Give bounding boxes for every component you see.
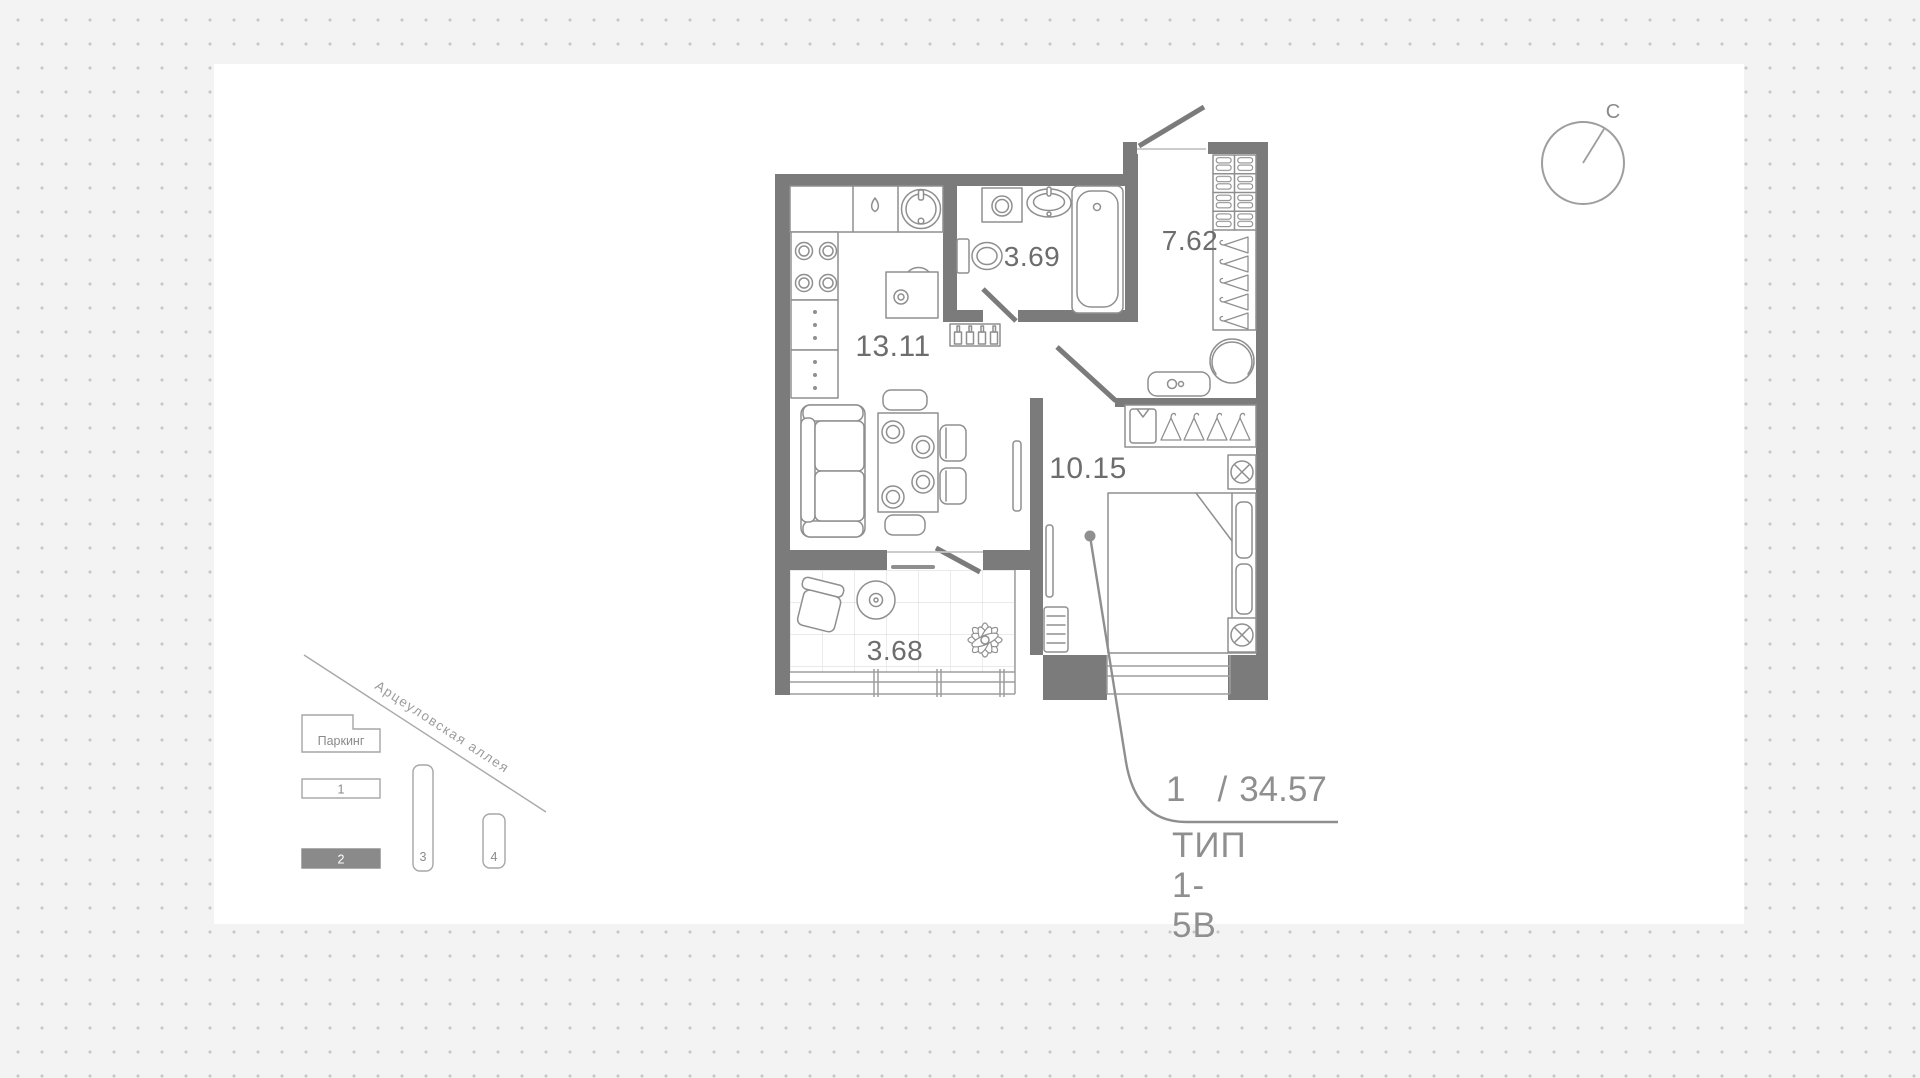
bathtub-icon — [1072, 186, 1123, 313]
bathroom-sink-icon — [1027, 187, 1071, 217]
room-area-hallway: 7.62 — [1162, 225, 1219, 256]
site-plan: Арцеуловская аллея Паркинг 1 2 3 4 — [295, 645, 560, 885]
building-4[interactable]: 4 — [483, 814, 505, 868]
building-1[interactable]: 1 — [302, 779, 380, 798]
apartment-type: ТИП 1-5В — [1172, 826, 1247, 946]
building-2-selected[interactable]: 2 — [302, 849, 380, 868]
compass: С — [1520, 85, 1650, 215]
stove-icon — [791, 232, 838, 300]
desk-icon — [886, 268, 938, 319]
washing-machine-icon — [982, 188, 1022, 222]
sofa-icon — [801, 405, 865, 537]
apartment-summary: 1/34.57 — [1166, 770, 1327, 810]
room-area-kitchen-living: 13.11 — [855, 330, 930, 363]
vent-shaft-icon — [1228, 455, 1256, 489]
parking-building[interactable]: Паркинг — [302, 715, 380, 752]
balcony-table-icon — [857, 581, 895, 619]
divider-slash: / — [1217, 770, 1227, 809]
bar-shelf-icon — [950, 324, 1000, 346]
room-area-bedroom: 10.15 — [1049, 452, 1127, 485]
building-3[interactable]: 3 — [413, 765, 433, 871]
entrance-door-swing — [1139, 107, 1204, 146]
radiator-icon — [1044, 607, 1068, 652]
bedroom-window — [1107, 655, 1230, 694]
parking-label: Паркинг — [318, 734, 365, 748]
living-tv-icon — [1013, 441, 1021, 511]
room-area-bathroom: 3.69 — [1004, 241, 1061, 272]
hallway-hangers-icon — [1220, 237, 1248, 329]
console-table-icon — [1148, 372, 1210, 396]
street-name: Арцеуловская аллея — [372, 678, 512, 776]
plant-icon — [968, 623, 1002, 657]
dining-set-icon — [878, 390, 966, 535]
canvas: 13.11 3.69 7.62 10.15 3.68 Арцеуловская … — [0, 0, 1920, 1078]
kitchen-sink-icon — [902, 190, 941, 229]
building-3-label: 3 — [420, 850, 427, 864]
building-2-label: 2 — [338, 853, 345, 867]
bedroom-rail-icon — [1125, 405, 1256, 447]
vent-shaft-icon — [1228, 618, 1256, 652]
room-area-balcony: 3.68 — [867, 635, 924, 666]
building-1-label: 1 — [338, 783, 345, 797]
rooms-count: 1 — [1166, 770, 1185, 809]
hallway-chair-icon — [1210, 339, 1254, 383]
floor-plan: 13.11 3.69 7.62 10.15 3.68 — [760, 95, 1420, 885]
bedroom-tv-icon — [1046, 525, 1053, 597]
bedroom-door-swing — [1057, 347, 1116, 401]
kitchen-cabinets-icon — [791, 300, 838, 398]
toilet-icon — [957, 239, 1002, 273]
building-4-label: 4 — [491, 850, 498, 864]
bathroom-door-swing — [983, 289, 1016, 321]
total-area: 34.57 — [1239, 770, 1327, 809]
north-label: С — [1606, 101, 1620, 123]
